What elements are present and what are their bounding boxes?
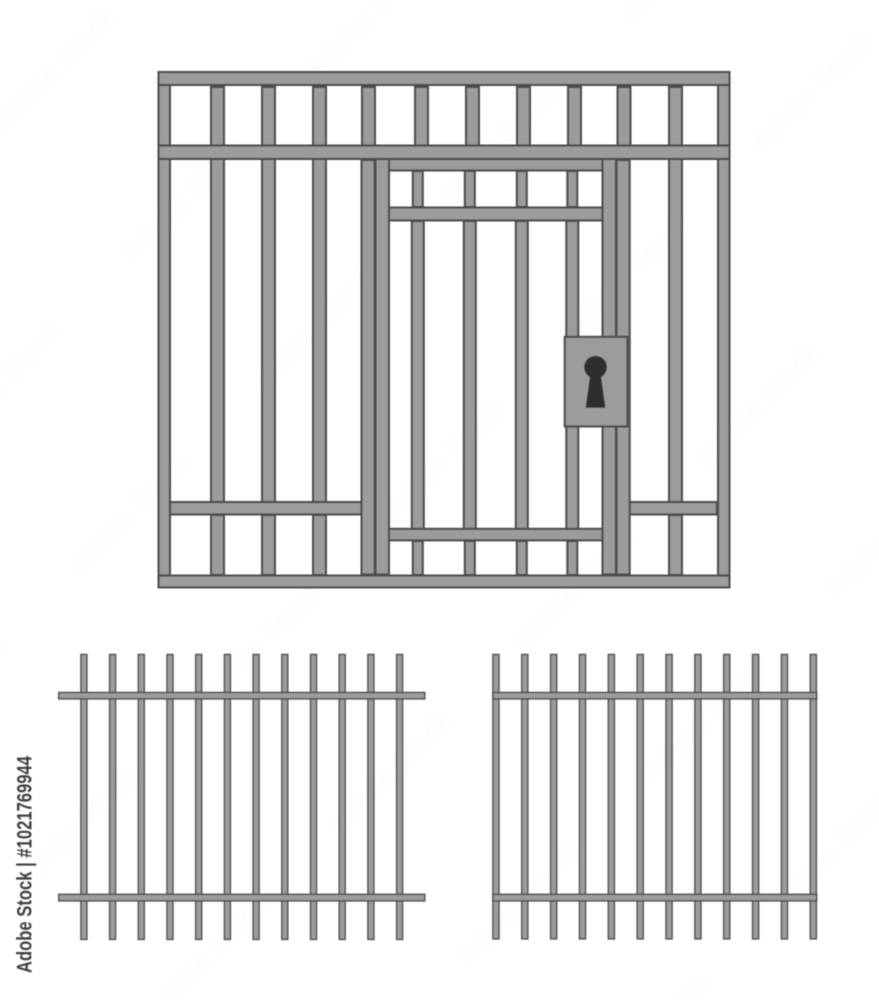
- svg-text:Adobe Stock | #1021769944: Adobe Stock | #1021769944: [14, 756, 37, 973]
